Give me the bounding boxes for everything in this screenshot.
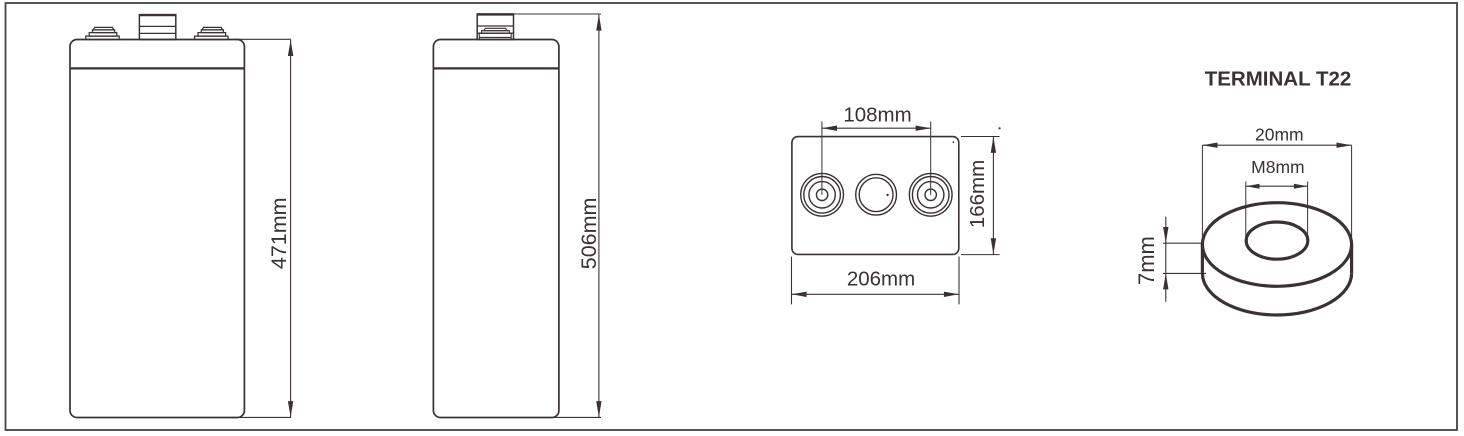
svg-text:M8mm: M8mm — [1251, 157, 1304, 177]
svg-text:206mm: 206mm — [847, 268, 915, 291]
svg-text:TERMINAL T22: TERMINAL T22 — [1205, 68, 1352, 91]
svg-text:108mm: 108mm — [843, 103, 911, 126]
svg-text:20mm: 20mm — [1255, 125, 1304, 145]
svg-text:506mm: 506mm — [577, 198, 601, 270]
svg-text:471mm: 471mm — [267, 197, 291, 269]
svg-text:7mm: 7mm — [1134, 236, 1159, 285]
svg-text:166mm: 166mm — [966, 160, 989, 228]
